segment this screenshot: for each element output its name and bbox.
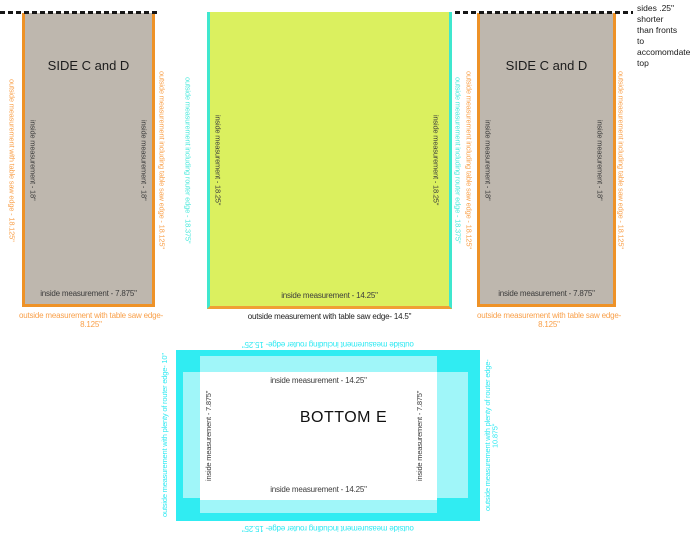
dashed-cut-line-right (455, 11, 633, 14)
side-left-title: SIDE C and D (22, 58, 155, 73)
sides-shorter-note: sides .25" shorter than fronts to accomo… (637, 3, 699, 69)
front-outside-bottom-label: outside measurement with table saw edge-… (207, 313, 452, 322)
side-left-outside-bottom-label: outside measurement with table saw edge-… (16, 312, 166, 330)
bottom-e-corner-block (437, 498, 480, 521)
bottom-e-inside-area (200, 372, 437, 500)
front-center-panel (207, 12, 452, 309)
side-left-inside-left-label: inside measurement - 18" (29, 13, 37, 307)
cut-diagram-canvas: sides .25" shorter than fronts to accomo… (0, 0, 700, 534)
front-inside-left-label: inside measurement - 18.25" (214, 12, 222, 309)
bottom-e-outside-bottom-label: outside measurement including router edg… (176, 523, 480, 532)
front-outside-left-label: outside measurement including router edg… (184, 12, 192, 309)
bottom-e-corner-block (176, 350, 200, 372)
side-left-outside-left-label: outside measurement with table saw edge … (8, 13, 16, 307)
bottom-e-inside-top-label: inside measurement - 14.25" (200, 377, 437, 386)
side-right-outside-right-label: outside measurement including table saw … (617, 13, 625, 307)
side-right-inside-right-label: inside measurement - 18" (596, 13, 604, 307)
side-left-inside-right-label: inside measurement - 18" (140, 13, 148, 307)
bottom-e-outside-left-label: outside measurement with plenty of route… (161, 350, 169, 521)
bottom-e-inside-right-label: inside measurement - 7.875" (416, 372, 424, 500)
side-right-outside-left-label: outside measurement including table saw … (465, 13, 473, 307)
bottom-e-inside-bottom-label: inside measurement - 14.25" (200, 486, 437, 495)
front-inside-bottom-label: inside measurement - 14.25" (207, 292, 452, 301)
side-left-outside-right-label: outside measurement including table saw … (158, 13, 166, 307)
dashed-cut-line-left (0, 11, 160, 14)
side-right-inside-bottom-label: inside measurement - 7.875" (477, 290, 616, 299)
front-outside-right-label: outside measurement including router edg… (454, 12, 462, 309)
side-right-outside-bottom-label: outside measurement with table saw edge-… (474, 312, 624, 330)
bottom-e-inside-left-label: inside measurement - 7.875" (205, 372, 213, 500)
bottom-e-corner-block (437, 350, 480, 372)
bottom-e-corner-block (176, 498, 200, 521)
side-right-inside-left-label: inside measurement - 18" (484, 13, 492, 307)
front-inside-right-label: inside measurement - 18.25" (432, 12, 440, 309)
bottom-e-outside-top-label: outside measurement including router edg… (176, 339, 480, 348)
bottom-e-outside-right-label: outside measurement with plenty of route… (484, 350, 499, 521)
bottom-e-title: BOTTOM E (225, 409, 462, 427)
side-left-inside-bottom-label: inside measurement - 7.875" (22, 290, 155, 299)
